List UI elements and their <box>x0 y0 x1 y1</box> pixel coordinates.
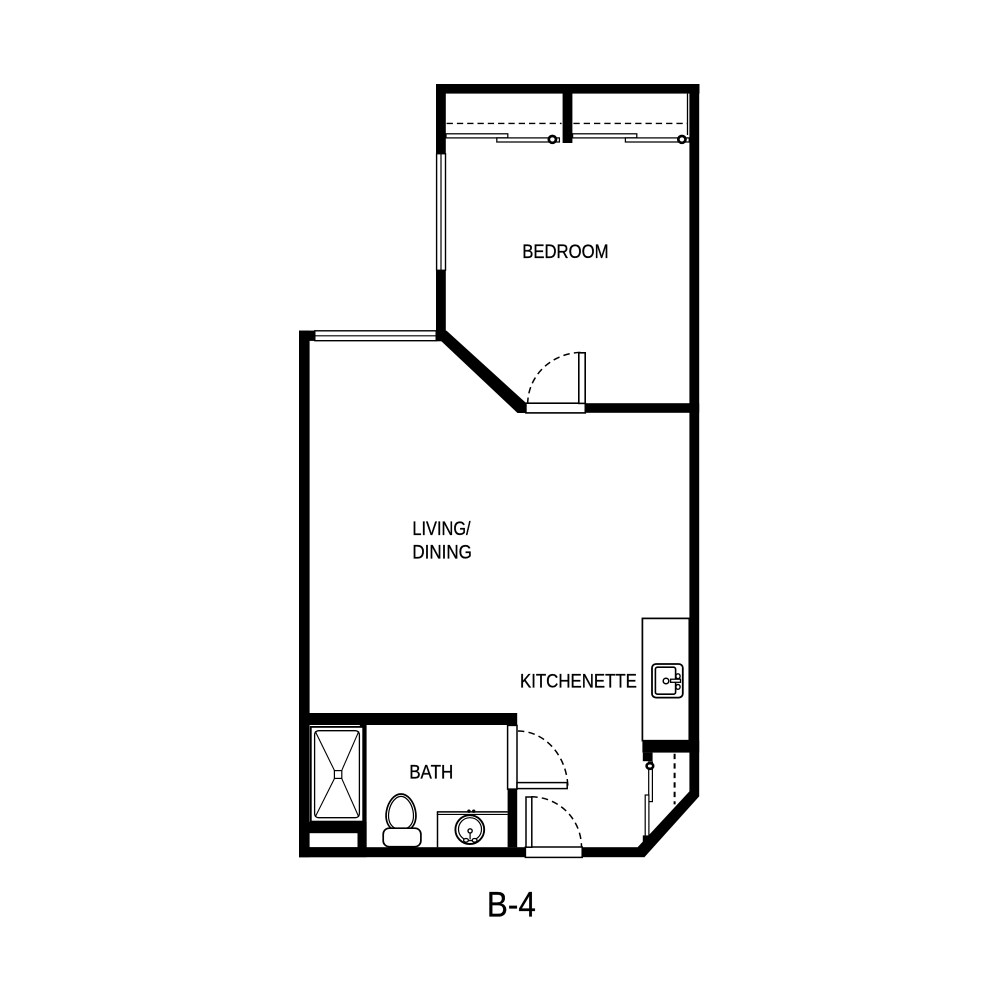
svg-text:DINING: DINING <box>412 542 472 563</box>
svg-text:KITCHENETTE: KITCHENETTE <box>520 671 637 692</box>
svg-text:LIVING/: LIVING/ <box>412 519 471 540</box>
svg-text:BATH: BATH <box>409 762 453 783</box>
svg-text:BEDROOM: BEDROOM <box>522 242 608 263</box>
svg-text:B-4: B-4 <box>487 886 536 925</box>
